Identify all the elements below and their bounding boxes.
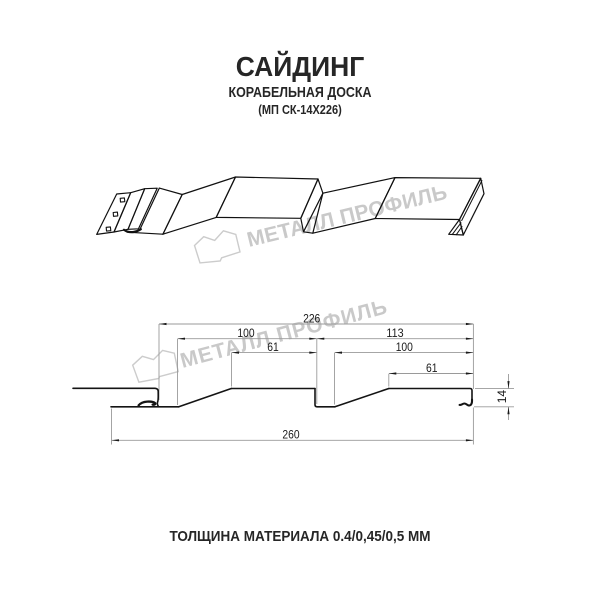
svg-text:100: 100 (396, 340, 413, 354)
svg-text:226: 226 (303, 312, 320, 326)
svg-text:113: 113 (386, 326, 403, 340)
svg-text:14: 14 (495, 390, 509, 404)
svg-text:МЕТАЛЛ ПРОФИЛЬ: МЕТАЛЛ ПРОФИЛЬ (178, 295, 390, 373)
svg-text:61: 61 (426, 361, 438, 375)
svg-text:МЕТАЛЛ ПРОФИЛЬ: МЕТАЛЛ ПРОФИЛЬ (245, 181, 450, 252)
svg-text:100: 100 (237, 326, 254, 340)
svg-text:61: 61 (267, 340, 279, 354)
svg-text:260: 260 (282, 428, 299, 442)
